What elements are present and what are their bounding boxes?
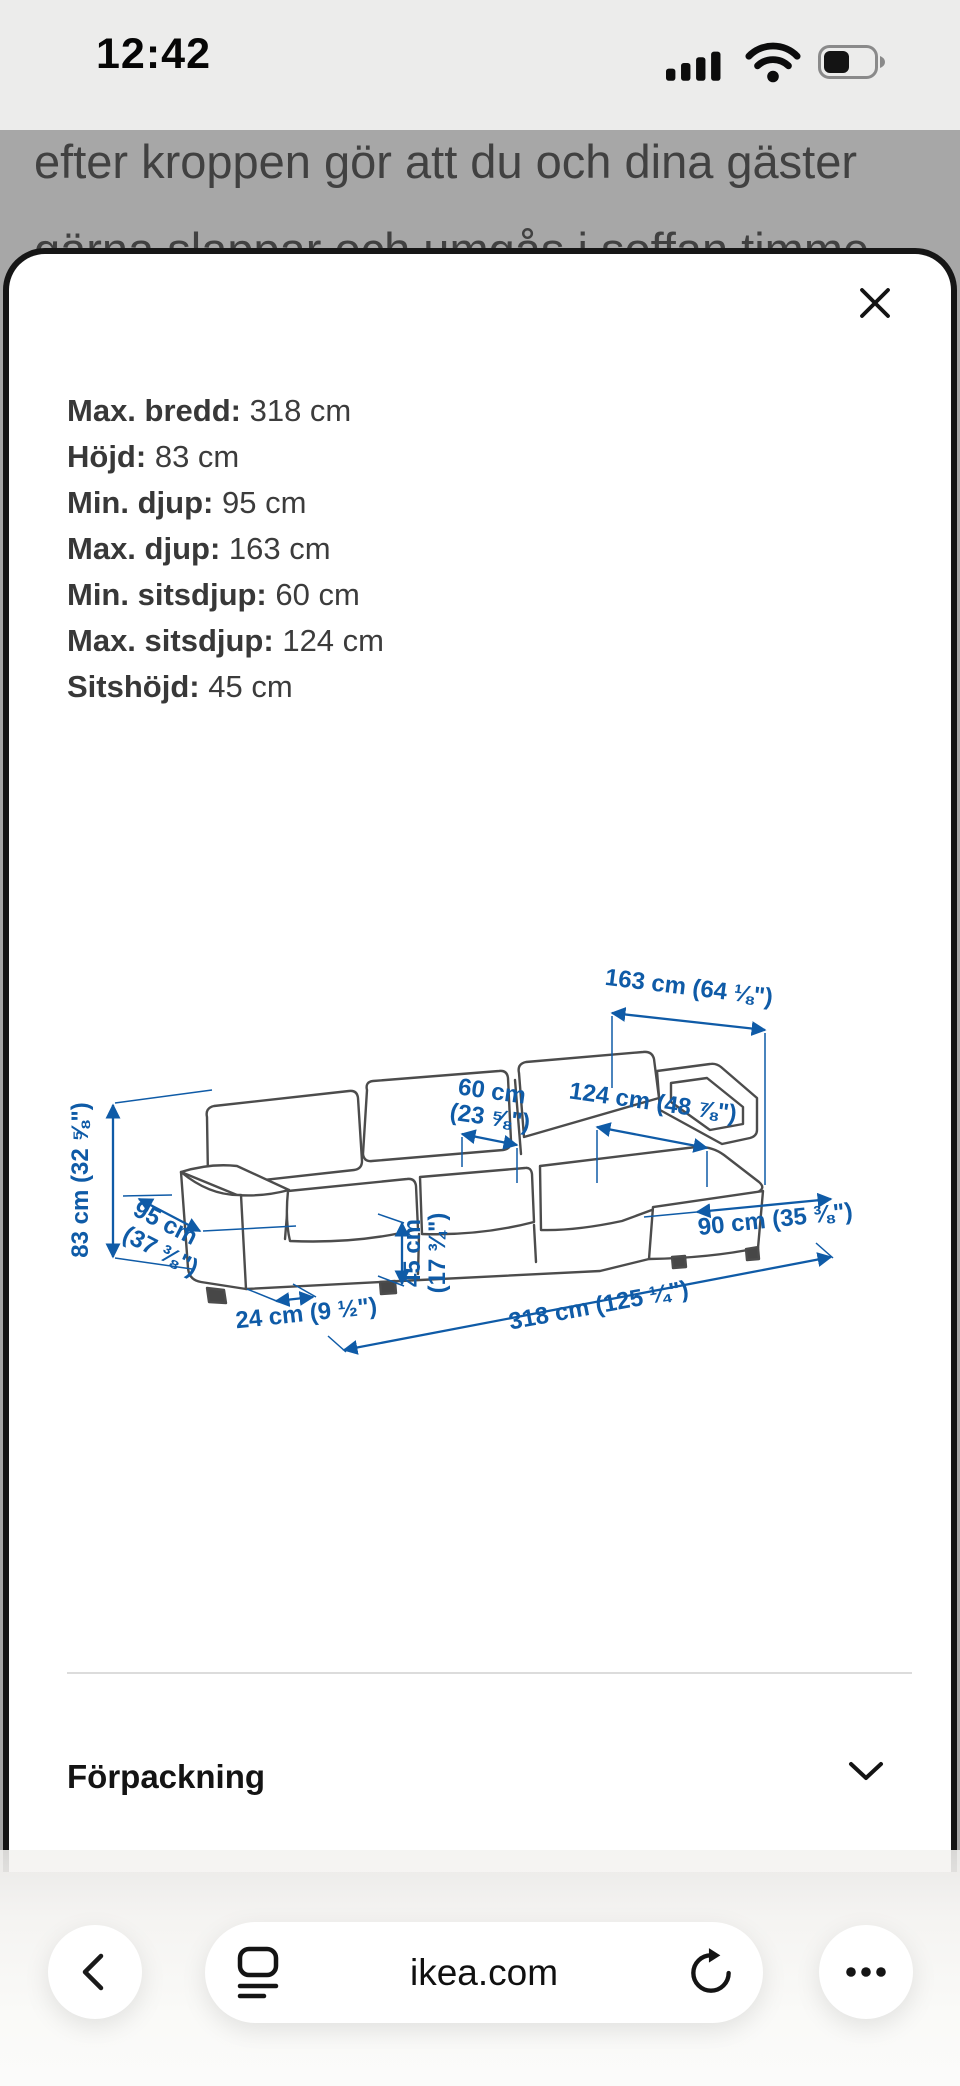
browser-more-button[interactable]	[819, 1925, 913, 2019]
sofa-dimension-diagram: 163 cm (64 ⅛") 124 cm (48 ⅞") 60 cm (23 …	[60, 940, 940, 1390]
signal-icon	[666, 40, 728, 84]
dimensions-modal: Max. bredd: 318 cm Höjd: 83 cm Min. djup…	[3, 248, 957, 1872]
more-dots-icon	[838, 1948, 894, 1996]
chevron-down-icon	[847, 1760, 885, 1784]
measurement-row: Höjd: 83 cm	[67, 434, 384, 480]
refresh-icon	[686, 1946, 736, 2000]
packaging-label: Förpackning	[67, 1758, 265, 1795]
page-text-line1: efter kroppen gör att du och dina gäster	[34, 134, 934, 189]
measurement-row: Max. sitsdjup: 124 cm	[67, 618, 384, 664]
measurement-row: Sitshöjd: 45 cm	[67, 664, 384, 710]
status-icons	[666, 36, 886, 88]
wifi-icon	[744, 40, 802, 84]
section-divider	[67, 1672, 912, 1674]
close-icon	[853, 281, 897, 325]
status-bar: 12:42	[0, 0, 960, 130]
dim-label-318: 318 cm (125 ¼")	[507, 1276, 691, 1336]
url-bar[interactable]: ikea.com	[205, 1922, 763, 2023]
dim-label-24: 24 cm (9 ½")	[234, 1293, 378, 1335]
dim-label-83: 83 cm (32 ⅝")	[67, 1102, 94, 1257]
packaging-accordion[interactable]: Förpackning	[67, 1742, 897, 1812]
measurement-row: Min. djup: 95 cm	[67, 480, 384, 526]
close-button[interactable]	[847, 276, 903, 332]
measurement-row: Min. sitsdjup: 60 cm	[67, 572, 384, 618]
dim-label-45a: 45 cm	[399, 1219, 426, 1287]
measurement-list: Max. bredd: 318 cm Höjd: 83 cm Min. djup…	[67, 388, 384, 710]
back-chevron-icon	[71, 1946, 119, 1998]
battery-icon	[818, 45, 886, 79]
measurement-row: Max. djup: 163 cm	[67, 526, 384, 572]
dim-label-45b: (17 ¾")	[424, 1213, 451, 1294]
browser-back-button[interactable]	[48, 1925, 142, 2019]
dim-label-163: 163 cm (64 ⅛")	[603, 964, 774, 1011]
measurement-row: Max. bredd: 318 cm	[67, 388, 384, 434]
clock: 12:42	[96, 30, 211, 79]
refresh-button[interactable]	[671, 1922, 751, 2023]
browser-bottom-bar: ikea.com	[0, 1850, 960, 2086]
